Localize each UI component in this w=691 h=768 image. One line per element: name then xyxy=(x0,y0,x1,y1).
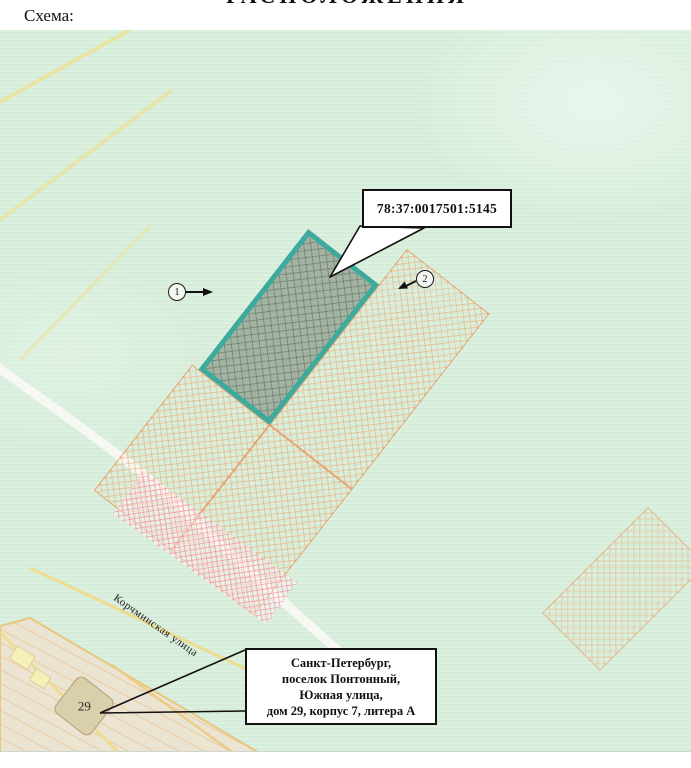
cropped-page-title: РАСПОЛОЖЕНИЯ xyxy=(226,0,506,7)
address-line: Южная улица, xyxy=(247,687,435,703)
small-building xyxy=(30,669,51,689)
point-marker-2-label: 2 xyxy=(423,274,428,285)
road-line-topleft-2 xyxy=(0,90,172,220)
cadastral-map: 29 Корчминская улица 78:37:0017501:5145 … xyxy=(0,30,691,752)
address-callout-pointer xyxy=(100,650,245,713)
small-building xyxy=(9,646,35,670)
industrial-zone xyxy=(0,618,258,752)
document-page: РАСПОЛОЖЕНИЯ Схема: 29 xyxy=(0,0,691,768)
road-line-topleft-3 xyxy=(20,226,150,360)
cropped-title-text: РАСПОЛОЖЕНИЯ xyxy=(226,0,506,7)
scheme-label: Схема: xyxy=(24,6,74,26)
building-29: 29 xyxy=(52,674,117,739)
point-marker-2: 2 xyxy=(416,270,434,288)
zone-inner-road xyxy=(112,665,232,752)
road-line-topleft-1 xyxy=(0,30,130,102)
address-line: дом 29, корпус 7, литера А xyxy=(247,703,435,719)
address-line: поселок Понтонный, xyxy=(247,671,435,687)
street-name-label: Корчминская улица xyxy=(111,592,200,659)
cadastral-number: 78:37:0017501:5145 xyxy=(377,201,497,217)
point-marker-1: 1 xyxy=(168,283,186,301)
address-callout: Санкт-Петербург, поселок Понтонный, Южна… xyxy=(245,648,437,725)
marker-1-arrowhead xyxy=(203,288,213,296)
cadastral-number-callout: 78:37:0017501:5145 xyxy=(362,189,512,228)
address-line: Санкт-Петербург, xyxy=(247,655,435,671)
point-marker-1-label: 1 xyxy=(175,287,180,298)
parcel-block xyxy=(109,229,469,610)
adjacent-parcel-east xyxy=(542,507,691,671)
building-29-label: 29 xyxy=(78,698,91,714)
